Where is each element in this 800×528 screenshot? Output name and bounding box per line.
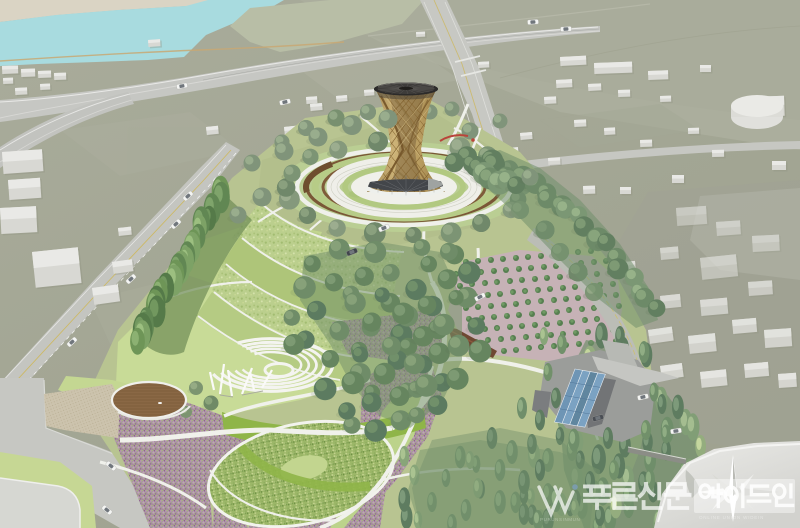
svg-text:ONLINE UNION WIDEIN: ONLINE UNION WIDEIN bbox=[699, 515, 764, 520]
svg-text:PURUNSINMUN: PURUNSINMUN bbox=[540, 517, 580, 522]
